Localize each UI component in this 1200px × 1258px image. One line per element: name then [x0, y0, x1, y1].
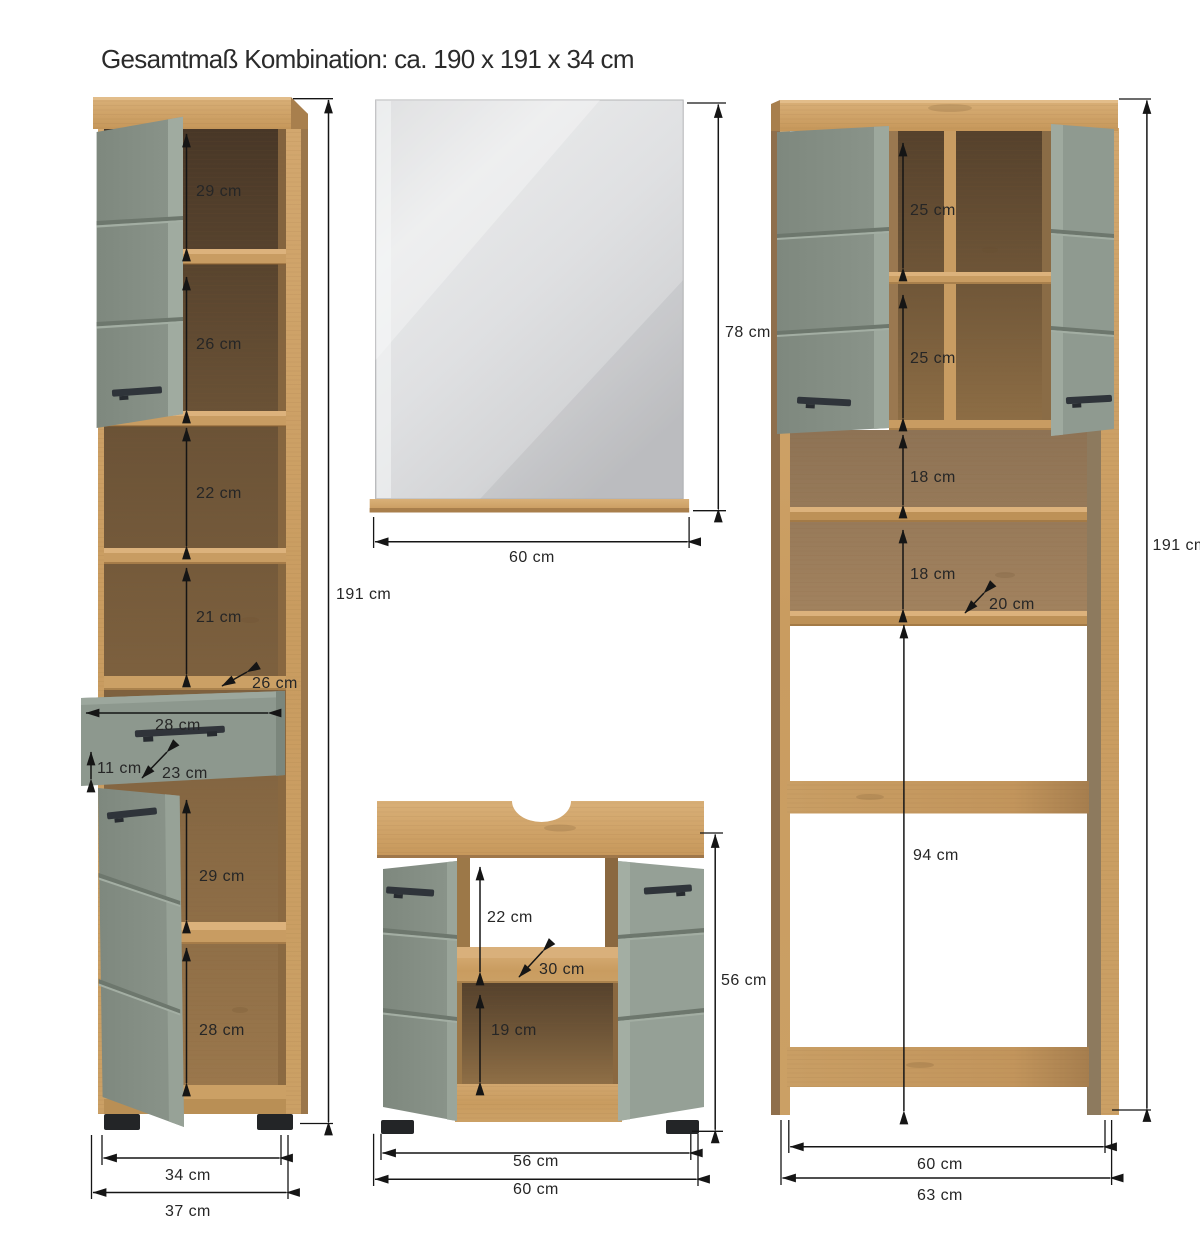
svg-text:29 cm: 29 cm [196, 183, 242, 200]
svg-text:28 cm: 28 cm [199, 1022, 245, 1039]
svg-text:56 cm: 56 cm [513, 1153, 559, 1170]
svg-text:63 cm: 63 cm [917, 1187, 963, 1204]
svg-text:26 cm: 26 cm [252, 675, 298, 692]
svg-text:21 cm: 21 cm [196, 609, 242, 626]
svg-text:25 cm: 25 cm [910, 202, 956, 219]
svg-text:23 cm: 23 cm [162, 765, 208, 782]
svg-text:191 cm: 191 cm [336, 586, 391, 603]
svg-text:29 cm: 29 cm [199, 868, 245, 885]
svg-text:78 cm: 78 cm [725, 324, 771, 341]
svg-text:26 cm: 26 cm [196, 336, 242, 353]
svg-text:34 cm: 34 cm [165, 1167, 211, 1184]
svg-text:20 cm: 20 cm [989, 596, 1035, 613]
svg-text:60 cm: 60 cm [509, 549, 555, 566]
svg-text:Gesamtmaß Kombination: ca. 190: Gesamtmaß Kombination: ca. 190 x 191 x 3… [101, 44, 634, 74]
svg-text:11 cm: 11 cm [97, 760, 142, 777]
svg-text:22 cm: 22 cm [487, 909, 533, 926]
svg-text:56 cm: 56 cm [721, 972, 767, 989]
svg-text:37 cm: 37 cm [165, 1203, 211, 1220]
svg-text:19 cm: 19 cm [491, 1022, 537, 1039]
svg-text:22 cm: 22 cm [196, 485, 242, 502]
svg-text:25 cm: 25 cm [910, 350, 956, 367]
svg-text:18 cm: 18 cm [910, 566, 956, 583]
svg-text:18 cm: 18 cm [910, 469, 956, 486]
svg-text:28 cm: 28 cm [155, 717, 201, 734]
svg-text:60 cm: 60 cm [917, 1156, 963, 1173]
svg-text:94 cm: 94 cm [913, 847, 959, 864]
svg-text:30 cm: 30 cm [539, 961, 585, 978]
svg-text:191 cm: 191 cm [1153, 537, 1200, 554]
svg-text:60 cm: 60 cm [513, 1181, 559, 1198]
